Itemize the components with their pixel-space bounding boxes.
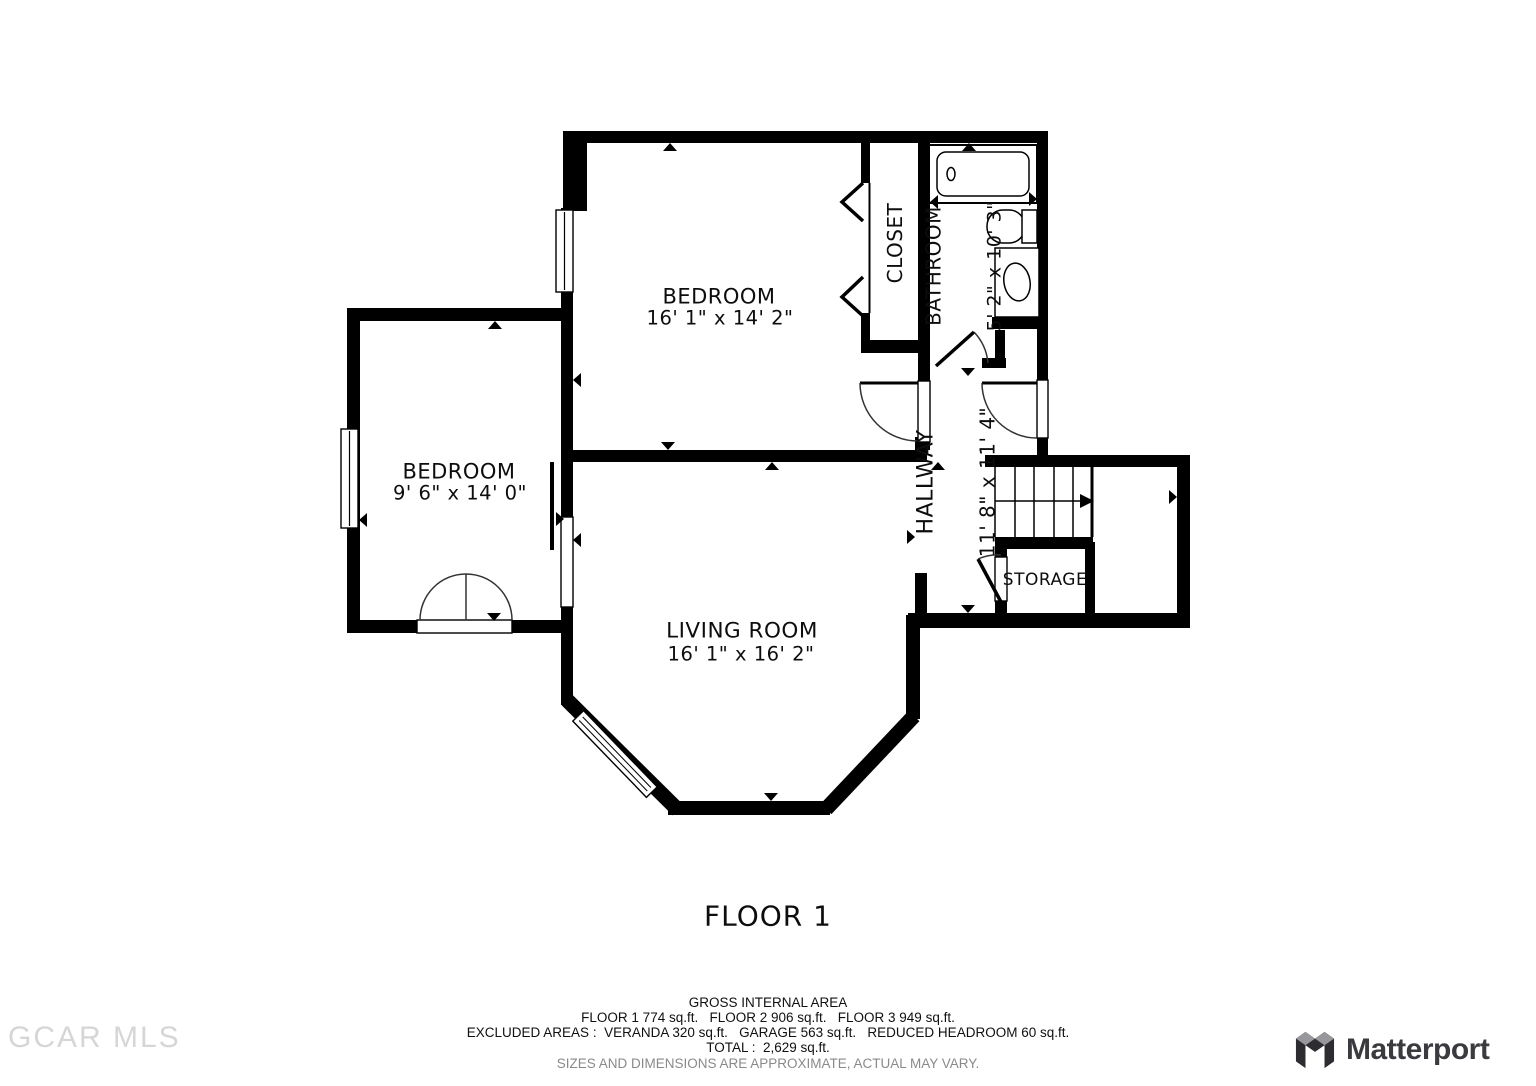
matterport-logo-text: Matterport bbox=[1346, 1033, 1489, 1067]
hallway-dims: 11' 8" x 11' 4" bbox=[977, 407, 1001, 558]
bathroom-door-icon bbox=[936, 332, 988, 366]
sliding-door-panel bbox=[550, 462, 554, 550]
area-summary-floors: FLOOR 1 774 sq.ft. FLOOR 2 906 sq.ft. FL… bbox=[581, 1010, 955, 1025]
bay-window-icon bbox=[573, 711, 657, 798]
matterport-branding: Matterport bbox=[1294, 1030, 1489, 1070]
french-door-threshold bbox=[417, 620, 512, 633]
matterport-logo-icon bbox=[1294, 1030, 1336, 1070]
hallway-name: HALLWAY bbox=[913, 407, 939, 558]
closet-bifold-doors-icon bbox=[842, 183, 863, 316]
floor-title: FLOOR 1 bbox=[704, 899, 832, 932]
mls-watermark: GCAR MLS bbox=[8, 1021, 181, 1055]
room-label-bathroom: BATHROOM 5' 2" x 10' 3" bbox=[884, 201, 1043, 332]
sliding-door-opening bbox=[561, 517, 573, 607]
room-dims-bedroom-left: 9' 6" x 14' 0" bbox=[393, 482, 527, 505]
room-label-living-room: LIVING ROOM bbox=[666, 618, 818, 643]
room-dims-living-room: 16' 1" x 16' 2" bbox=[668, 643, 815, 666]
area-summary-excluded: EXCLUDED AREAS : VERANDA 320 sq.ft. GARA… bbox=[467, 1025, 1069, 1040]
room-label-storage: STORAGE bbox=[1003, 570, 1087, 590]
area-summary-disclaimer: SIZES AND DIMENSIONS ARE APPROXIMATE, AC… bbox=[557, 1056, 980, 1071]
bathtub-icon bbox=[929, 145, 1037, 203]
floor-plan-page: BEDROOM 16' 1" x 14' 2" BEDROOM 9' 6" x … bbox=[0, 0, 1536, 1086]
area-summary-total: TOTAL : 2,629 sq.ft. bbox=[706, 1040, 830, 1055]
door-opening bbox=[1037, 380, 1048, 438]
bathroom-dims: 5' 2" x 10' 3" bbox=[983, 201, 1005, 332]
room-label-hallway: HALLWAY 11' 8" x 11' 4" bbox=[876, 407, 1039, 558]
room-dims-bedroom-top: 16' 1" x 14' 2" bbox=[647, 307, 794, 330]
bathroom-name: BATHROOM bbox=[922, 201, 946, 332]
area-summary-heading: GROSS INTERNAL AREA bbox=[689, 995, 848, 1010]
